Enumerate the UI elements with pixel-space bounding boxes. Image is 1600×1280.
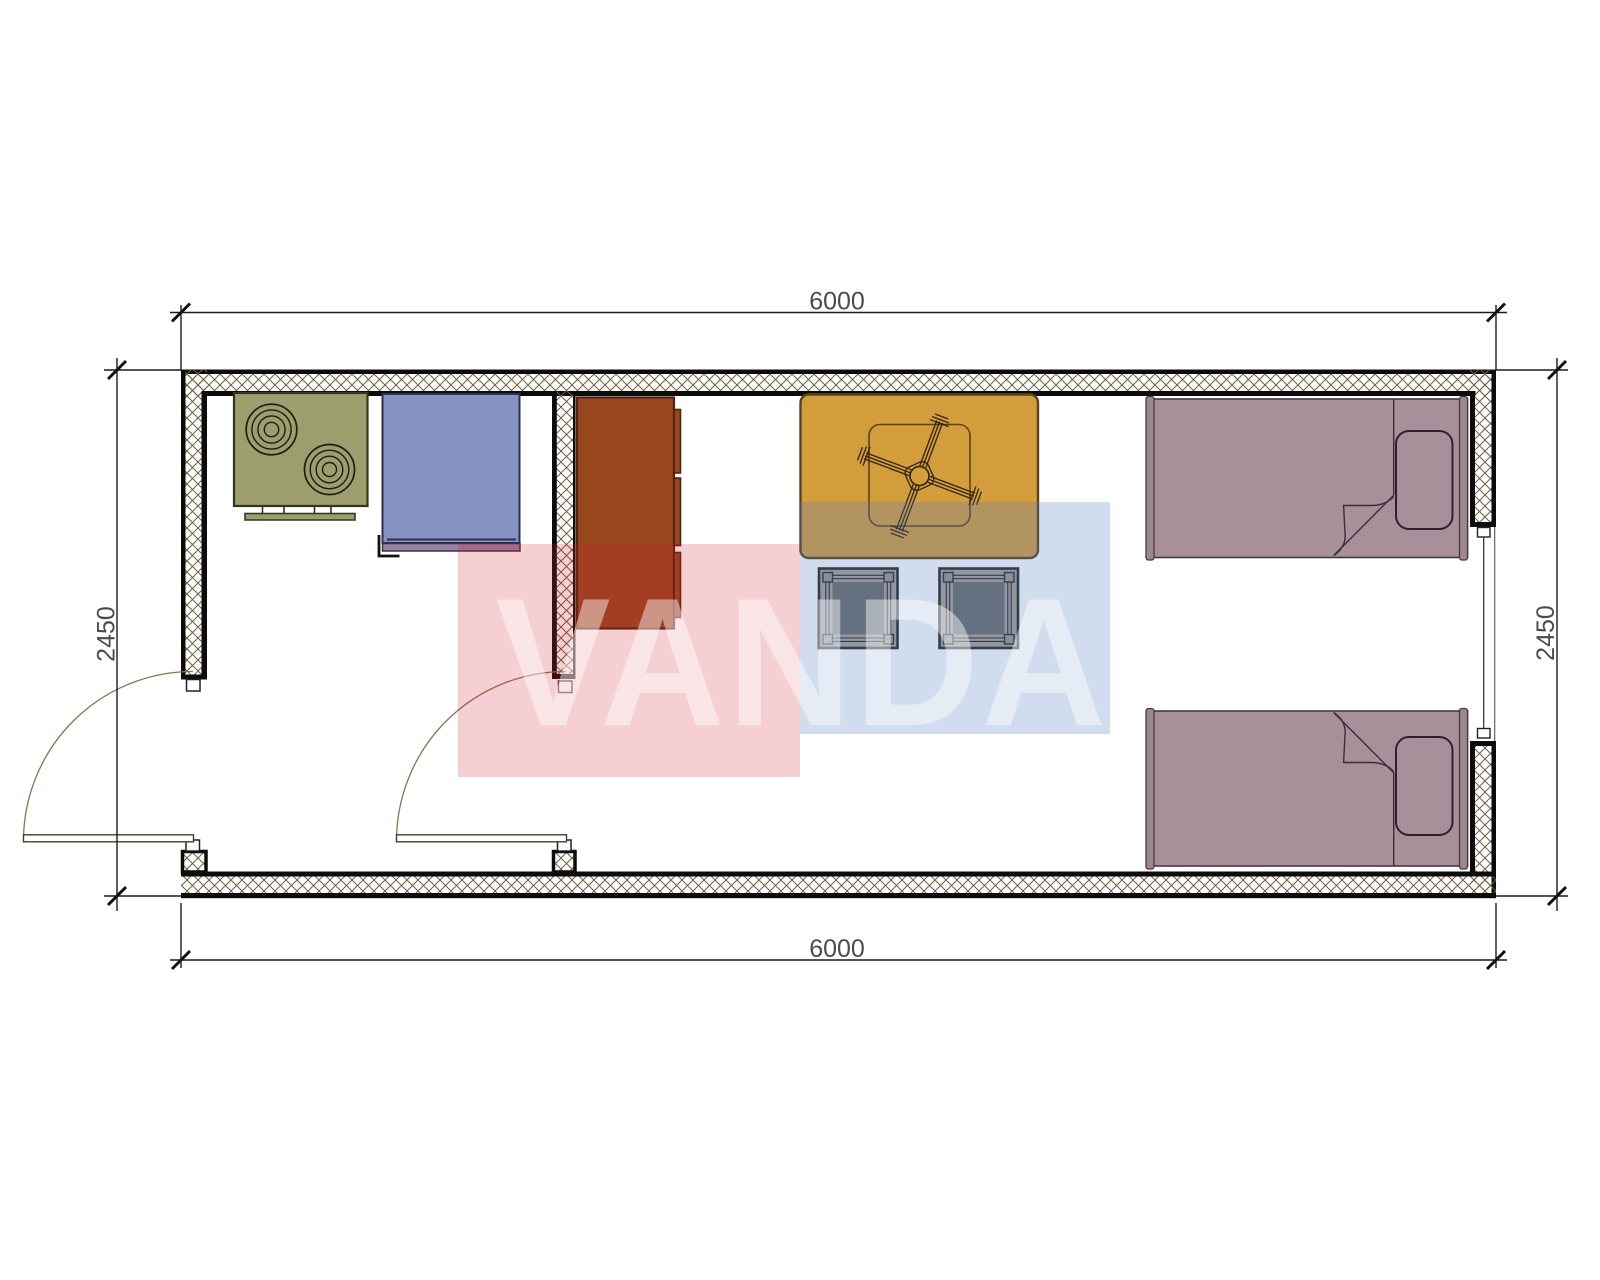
svg-text:6000: 6000 [809, 288, 865, 316]
svg-text:2450: 2450 [93, 606, 121, 662]
svg-text:VANDA: VANDA [495, 560, 1108, 765]
svg-text:6000: 6000 [809, 935, 865, 963]
svg-text:2450: 2450 [1532, 605, 1560, 661]
